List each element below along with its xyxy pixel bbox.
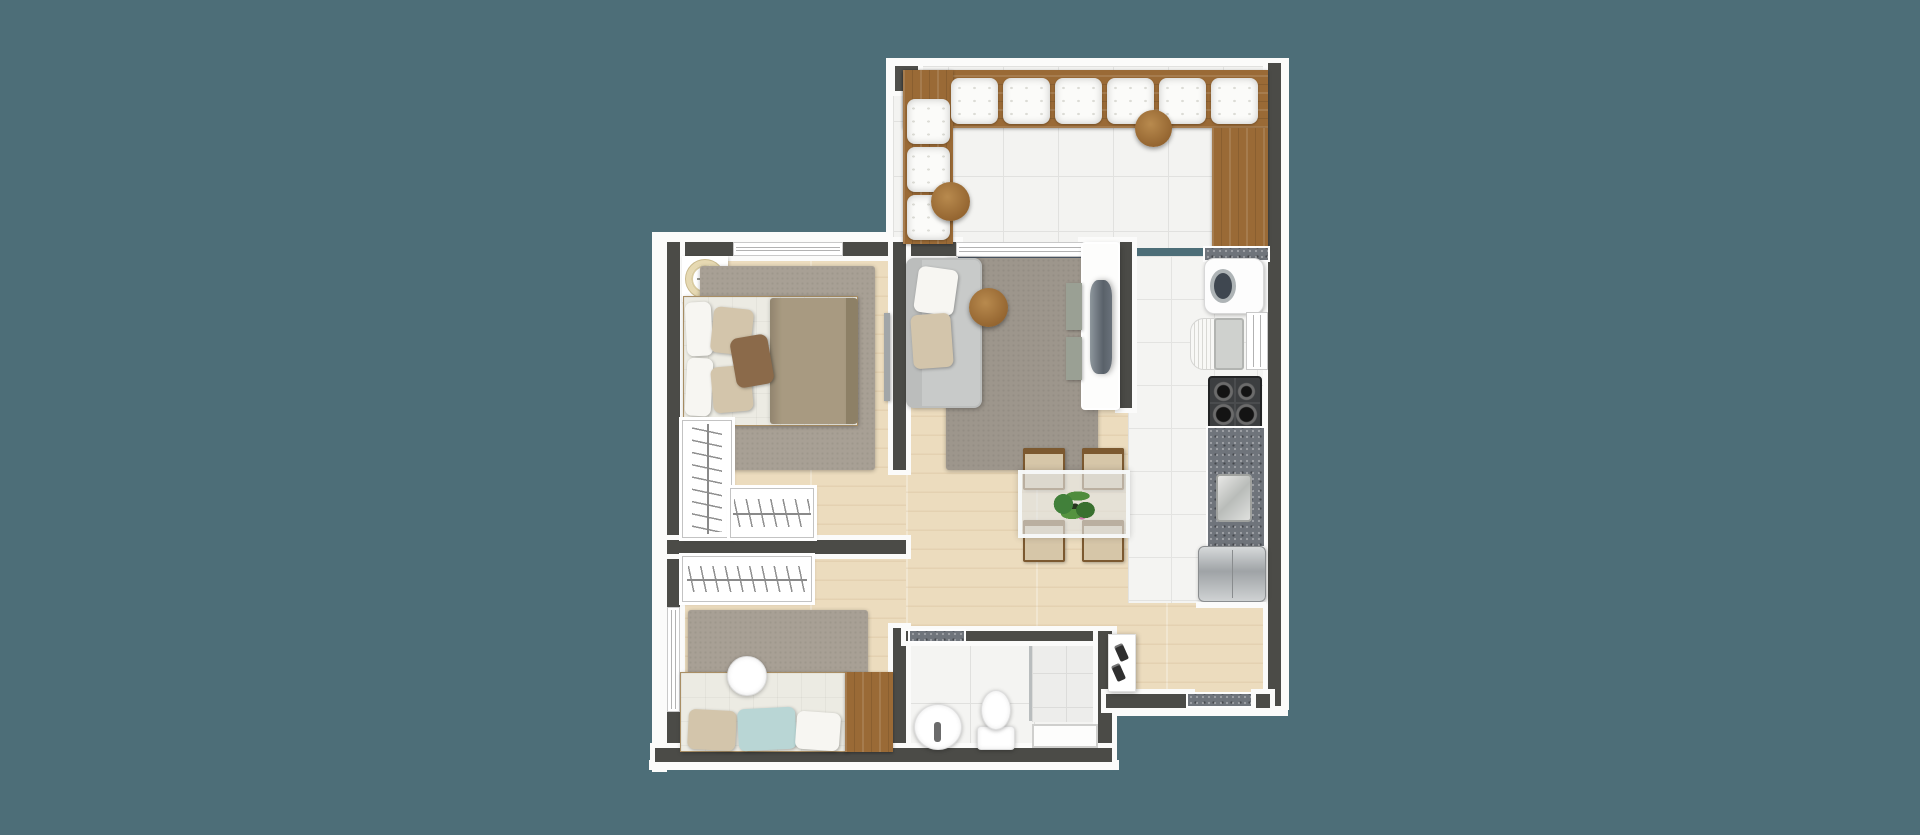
balcony-sliding-door	[956, 242, 1085, 257]
wall-corridor	[893, 242, 906, 470]
tv	[1090, 280, 1112, 374]
bedroom1-closet-tall	[682, 420, 732, 538]
bedroom1-mirror	[884, 313, 890, 401]
wall-bedrooms-divider	[667, 540, 906, 554]
bed2-pillow	[795, 711, 842, 752]
bed1-pillow	[685, 301, 714, 356]
media-shelf	[1066, 283, 1082, 330]
sink-pedestal	[934, 722, 941, 742]
stove	[1208, 376, 1262, 430]
bed1-pillow	[685, 357, 714, 416]
wall-right	[1268, 63, 1281, 706]
bedroom1-window	[733, 242, 843, 256]
bedroom2-desk	[845, 672, 893, 752]
bedroom1-closet-low	[730, 488, 814, 538]
counter-steel-sink	[1216, 474, 1252, 522]
bench-cushion	[1055, 78, 1102, 124]
wall-bathroom-left	[893, 628, 906, 762]
entry-threshold	[1188, 694, 1262, 706]
wall-entry-bottom	[1106, 694, 1190, 708]
trim-top-bedroom	[652, 232, 895, 242]
balcony-round-table	[1135, 110, 1172, 147]
trim-left	[652, 232, 667, 772]
shower-glass-partition	[1029, 641, 1032, 721]
bench-cushion	[1211, 78, 1258, 124]
bench-cushion	[1003, 78, 1050, 124]
bed2-pillow	[737, 707, 797, 752]
fridge	[1198, 546, 1266, 602]
bench-cushion	[951, 78, 998, 124]
bed1-duvet	[770, 298, 856, 424]
kitchen-sink-basin	[1214, 318, 1244, 370]
trim-right	[1281, 58, 1289, 710]
sink-drainboard	[1190, 318, 1216, 370]
sofa-pillow	[910, 313, 954, 370]
kitchen-window	[1246, 312, 1268, 370]
washing-machine	[1204, 258, 1264, 314]
balcony-round-table	[931, 182, 970, 221]
wall-entry-corner	[1256, 694, 1270, 708]
bedroom2-closet	[682, 556, 812, 602]
wall-living-kitchen	[1120, 242, 1132, 408]
bed2-pillow	[687, 709, 737, 751]
fridge-trim	[1196, 602, 1266, 608]
media-shelf	[1066, 337, 1082, 380]
bench-cushion	[907, 99, 950, 144]
bed1-duvet-fold	[846, 298, 858, 424]
floor-shower	[1032, 639, 1100, 722]
bathroom-threshold	[910, 631, 964, 641]
shower-ledge	[1032, 724, 1098, 748]
bedroom2-side-table	[727, 656, 767, 696]
toilet-bowl	[981, 690, 1011, 730]
bedroom2-window	[667, 607, 680, 712]
coffee-table	[969, 288, 1008, 327]
table-plant	[1046, 486, 1104, 526]
floor-plan	[0, 0, 1920, 835]
kitchen-cabinet	[1212, 128, 1268, 250]
sofa-pillow	[913, 265, 959, 316]
